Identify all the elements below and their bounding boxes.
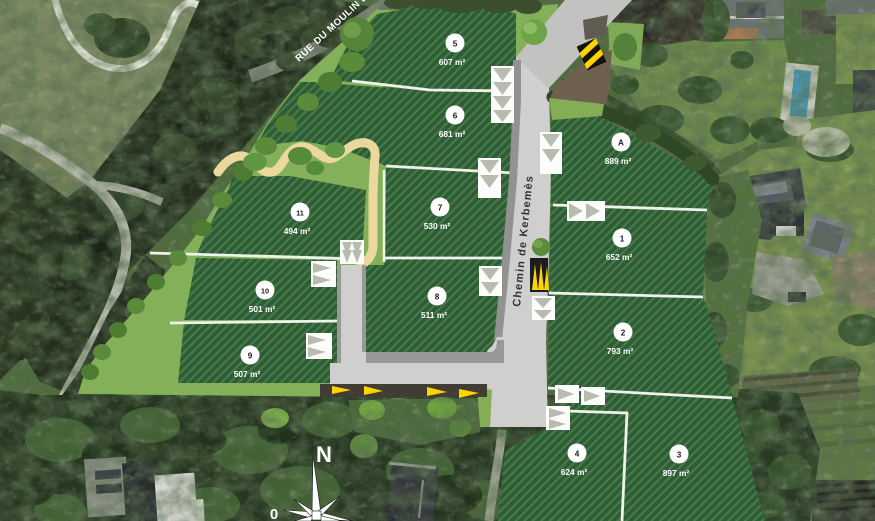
svg-text:624 m²: 624 m² <box>561 467 588 477</box>
svg-text:2: 2 <box>621 329 626 338</box>
svg-text:9: 9 <box>248 352 253 361</box>
svg-text:652 m²: 652 m² <box>606 252 633 262</box>
svg-text:530 m²: 530 m² <box>424 221 451 231</box>
svg-text:889 m²: 889 m² <box>605 156 632 166</box>
svg-text:10: 10 <box>261 287 269 296</box>
svg-text:11: 11 <box>296 209 304 218</box>
svg-text:N: N <box>316 442 332 467</box>
svg-text:7: 7 <box>438 204 443 213</box>
svg-text:5: 5 <box>453 40 458 49</box>
svg-text:A: A <box>618 139 624 148</box>
svg-text:1: 1 <box>620 235 625 244</box>
svg-text:511 m²: 511 m² <box>421 310 447 320</box>
svg-text:4: 4 <box>575 450 580 459</box>
svg-text:6: 6 <box>453 112 458 121</box>
svg-text:897 m²: 897 m² <box>663 468 690 478</box>
svg-text:607 m²: 607 m² <box>439 57 466 67</box>
svg-text:0: 0 <box>270 506 278 521</box>
svg-text:681 m²: 681 m² <box>439 129 466 139</box>
svg-text:8: 8 <box>435 293 440 302</box>
svg-text:507 m²: 507 m² <box>234 369 261 379</box>
svg-text:3: 3 <box>677 451 682 460</box>
svg-text:793 m²: 793 m² <box>607 346 634 356</box>
svg-text:501 m²: 501 m² <box>249 304 276 314</box>
svg-text:494 m²: 494 m² <box>284 226 311 236</box>
